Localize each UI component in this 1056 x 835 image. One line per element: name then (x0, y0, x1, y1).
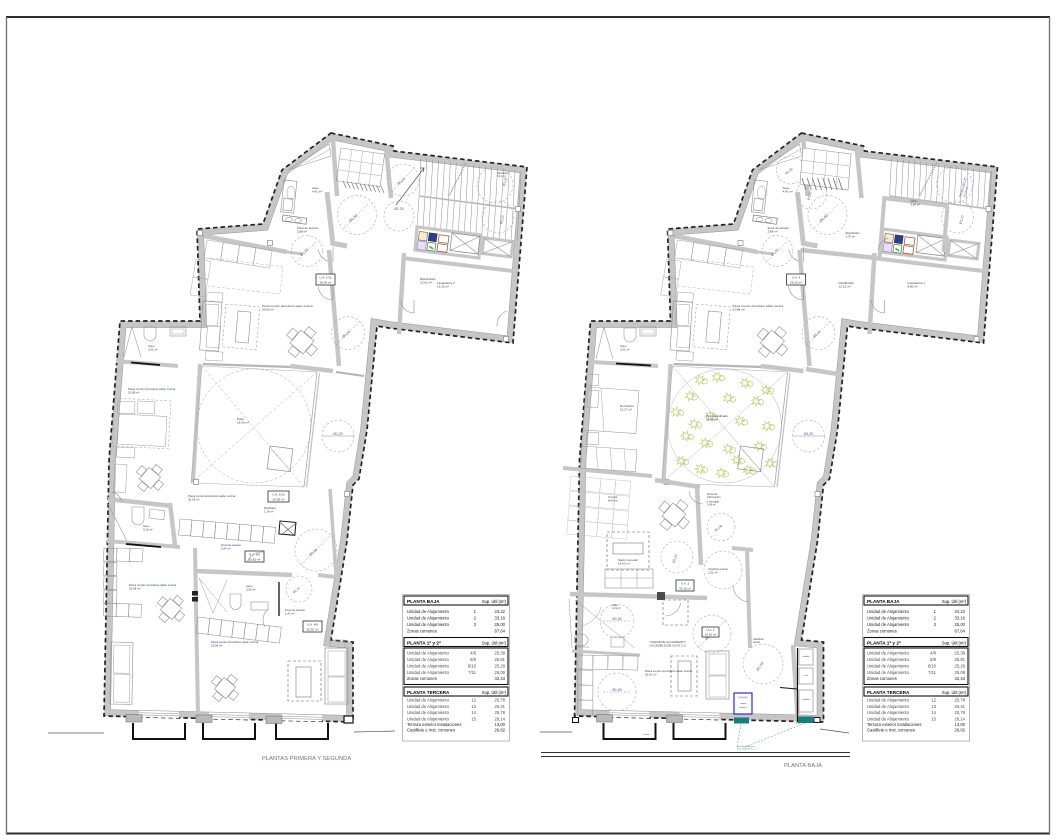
svg-text:PLANTAS PRIMERA Y SEGUNDA: PLANTAS PRIMERA Y SEGUNDA (262, 756, 351, 762)
svg-text:casillero: casillero (803, 655, 810, 658)
svg-text:Ø1,50: Ø1,50 (612, 617, 621, 621)
svg-text:Ø1,50: Ø1,50 (612, 688, 621, 692)
svg-text:calzada: calzada (644, 739, 652, 741)
svg-text:Unidad de Alojamiento: Unidad de Alojamiento (407, 704, 450, 709)
svg-text:PLANTA TERCERA: PLANTA TERCERA (407, 690, 450, 695)
svg-text:25,78: 25,78 (955, 710, 966, 715)
svg-text:7/11: 7/11 (928, 670, 937, 675)
svg-text:3,66 m²: 3,66 m² (911, 202, 921, 206)
svg-text:2,01 m²: 2,01 m² (708, 570, 718, 574)
svg-text:26,82: 26,82 (955, 728, 966, 733)
svg-text:26,32 m²: 26,32 m² (307, 628, 319, 632)
svg-text:Unidad de Alojamiento: Unidad de Alojamiento (867, 698, 910, 703)
svg-text:1,42 m²: 1,42 m² (285, 611, 295, 615)
svg-text:2,88 m²: 2,88 m² (768, 230, 778, 234)
svg-text:Sup. Útil (m²): Sup. Útil (m²) (482, 640, 507, 645)
svg-text:huella táctil (Ø no a...): huella táctil (Ø no a...) (737, 748, 757, 751)
svg-text:Ø1,20: Ø1,20 (804, 432, 813, 436)
svg-text:21,88 m²: 21,88 m² (733, 308, 745, 312)
svg-text:Unidad de Alojamiento: Unidad de Alojamiento (867, 657, 910, 662)
svg-text:3,61 m²: 3,61 m² (148, 347, 158, 351)
svg-text:Sup. Útil (m²): Sup. Útil (m²) (942, 640, 967, 645)
svg-text:Unidad de Alojamiento: Unidad de Alojamiento (407, 622, 450, 627)
svg-text:Unidad de Alojamiento: Unidad de Alojamiento (407, 716, 450, 721)
svg-text:33,16 m²: 33,16 m² (679, 587, 691, 591)
svg-text:Unidad de Alojamiento: Unidad de Alojamiento (407, 609, 450, 614)
svg-text:20,01 m²: 20,01 m² (645, 673, 656, 677)
svg-text:12: 12 (931, 698, 936, 703)
svg-text:26,38 m²: 26,38 m² (273, 498, 285, 502)
svg-text:Ø1,20: Ø1,20 (394, 207, 403, 211)
svg-text:25,00: 25,00 (495, 622, 506, 627)
svg-text:Unidad de Alojamiento: Unidad de Alojamiento (867, 651, 910, 656)
svg-text:15: 15 (931, 716, 936, 721)
svg-text:25,00: 25,00 (955, 622, 966, 627)
svg-text:26,09: 26,09 (955, 670, 966, 675)
svg-text:13: 13 (931, 704, 936, 709)
svg-text:26,04 m²: 26,04 m² (320, 281, 332, 285)
svg-text:20,06 m²: 20,06 m² (211, 644, 222, 648)
svg-text:33,16: 33,16 (495, 616, 506, 621)
svg-text:ACCESIBLE (DB SUA 9 1.2): ACCESIBLE (DB SUA 9 1.2) (650, 643, 686, 647)
svg-text:25,41: 25,41 (495, 704, 506, 709)
svg-text:4,21 m²: 4,21 m² (612, 606, 621, 610)
svg-text:18,00 m²: 18,00 m² (237, 421, 249, 425)
svg-text:13,00: 13,00 (955, 722, 966, 727)
svg-text:24,22 m²: 24,22 m² (705, 633, 717, 637)
svg-text:33,16: 33,16 (955, 616, 966, 621)
svg-text:4,41 m²: 4,41 m² (312, 190, 322, 194)
svg-text:24,22 m²: 24,22 m² (790, 281, 802, 285)
svg-text:Unidad de Alojamiento: Unidad de Alojamiento (867, 622, 910, 627)
svg-text:25,39: 25,39 (955, 651, 966, 656)
svg-text:Zonas comunes: Zonas comunes (867, 676, 897, 681)
svg-text:Sup. Útil (m²): Sup. Útil (m²) (942, 599, 967, 604)
svg-text:Zonas comunes: Zonas comunes (867, 629, 897, 634)
svg-text:14: 14 (931, 710, 936, 715)
svg-text:6/10: 6/10 (928, 664, 937, 669)
svg-text:U.A. 2: U.A. 2 (681, 582, 690, 586)
svg-text:(63x160): (63x160) (739, 697, 748, 699)
svg-text:67,64: 67,64 (955, 629, 966, 634)
svg-text:cuadro: cuadro (740, 703, 747, 705)
svg-text:13,26 m²: 13,26 m² (437, 285, 449, 289)
svg-text:26,14: 26,14 (955, 716, 966, 721)
svg-text:2,64 m²: 2,64 m² (221, 546, 231, 550)
svg-text:Unidad de Alojamiento: Unidad de Alojamiento (867, 664, 910, 669)
svg-text:3,75 m²: 3,75 m² (846, 234, 856, 238)
svg-text:Unidad de Alojamiento: Unidad de Alojamiento (407, 651, 450, 656)
svg-text:Unidad de Alojamiento: Unidad de Alojamiento (867, 716, 910, 721)
svg-text:Terraza exterior instalaciones: Terraza exterior instalaciones (867, 722, 921, 727)
svg-text:PLANTA BAJA: PLANTA BAJA (867, 599, 900, 604)
svg-text:25,39: 25,39 (495, 651, 506, 656)
svg-text:20,08 m²: 20,08 m² (129, 587, 140, 591)
svg-text:25,41: 25,41 (955, 704, 966, 709)
svg-text:PLANTA BAJA: PLANTA BAJA (407, 599, 440, 604)
svg-text:Unidad de Alojamiento: Unidad de Alojamiento (407, 670, 450, 675)
svg-text:Unidad de Alojamiento: Unidad de Alojamiento (407, 710, 450, 715)
svg-text:PLANTA 1ª y 2ª: PLANTA 1ª y 2ª (867, 640, 901, 645)
svg-text:Zonas comunes: Zonas comunes (407, 676, 437, 681)
svg-text:4/8: 4/8 (470, 651, 476, 656)
svg-text:Ø1,20: Ø1,20 (333, 432, 342, 436)
svg-text:12,12 m²: 12,12 m² (839, 285, 851, 289)
svg-text:eléctrico: eléctrico (739, 706, 747, 709)
svg-text:Unidad de Alojamiento: Unidad de Alojamiento (407, 664, 450, 669)
svg-text:26,09: 26,09 (495, 670, 506, 675)
svg-text:14: 14 (471, 710, 476, 715)
svg-text:8,00 m²: 8,00 m² (608, 499, 618, 503)
svg-text:6/10: 6/10 (468, 664, 477, 669)
svg-text:14,62 m²: 14,62 m² (618, 562, 630, 566)
svg-text:Unidad de Alojamiento: Unidad de Alojamiento (867, 670, 910, 675)
svg-text:U.A. 4: U.A. 4 (792, 276, 801, 280)
svg-text:castillete: castillete (802, 698, 809, 701)
svg-text:18,00 m²: 18,00 m² (706, 418, 718, 422)
svg-text:Unidad de Alojamiento: Unidad de Alojamiento (867, 704, 910, 709)
svg-text:3,05 m²: 3,05 m² (246, 587, 256, 591)
svg-text:acera: acera (644, 733, 650, 736)
svg-text:U.A. 4/8: U.A. 4/8 (307, 623, 318, 627)
svg-text:PLANTA TERCERA: PLANTA TERCERA (867, 690, 910, 695)
svg-text:Terraza exterior instalaciones: Terraza exterior instalaciones (407, 722, 461, 727)
svg-text:26,14: 26,14 (495, 716, 506, 721)
svg-text:24,22: 24,22 (955, 609, 966, 614)
svg-text:20,03 m²: 20,03 m² (188, 498, 199, 502)
svg-text:Unidad de Alojamiento: Unidad de Alojamiento (867, 609, 910, 614)
svg-text:8,80 m²: 8,80 m² (908, 285, 918, 289)
svg-text:25,29: 25,29 (955, 664, 966, 669)
svg-text:2,88 m²: 2,88 m² (297, 230, 307, 234)
svg-text:6,12 m²: 6,12 m² (497, 174, 506, 178)
svg-text:12,17 m²: 12,17 m² (620, 408, 632, 412)
svg-text:15: 15 (471, 716, 476, 721)
svg-text:42,43: 42,43 (955, 676, 966, 681)
svg-text:Sup. Útil (m²): Sup. Útil (m²) (482, 599, 507, 604)
svg-text:42,43: 42,43 (495, 676, 506, 681)
svg-text:25,81: 25,81 (955, 657, 966, 662)
svg-text:Zonas comunes: Zonas comunes (407, 629, 437, 634)
svg-text:26,82: 26,82 (495, 728, 506, 733)
svg-text:24,22: 24,22 (495, 609, 506, 614)
svg-text:7/11: 7/11 (468, 670, 477, 675)
svg-text:30,03 m²: 30,03 m² (262, 308, 274, 312)
svg-text:previo: previo (753, 640, 761, 644)
svg-text:25,81: 25,81 (495, 657, 506, 662)
svg-text:U.A. 5/9: U.A. 5/9 (249, 553, 260, 557)
svg-text:Unidad de Alojamiento: Unidad de Alojamiento (407, 657, 450, 662)
svg-text:1,76 m²: 1,76 m² (264, 509, 274, 513)
svg-text:22,62 m²: 22,62 m² (420, 281, 432, 285)
svg-text:Unidad de Alojamiento: Unidad de Alojamiento (867, 710, 910, 715)
svg-text:PLANTA 1ª y 2ª: PLANTA 1ª y 2ª (407, 640, 441, 645)
svg-text:3,16 m²: 3,16 m² (143, 527, 153, 531)
svg-text:5/9: 5/9 (930, 657, 936, 662)
svg-text:25,81 m²: 25,81 m² (249, 558, 261, 562)
svg-text:4,41 m²: 4,41 m² (783, 190, 793, 194)
svg-text:Sup. Útil (m²): Sup. Útil (m²) (942, 690, 967, 695)
svg-text:Unidad de Alojamiento: Unidad de Alojamiento (867, 616, 910, 621)
svg-text:Unidad de Alojamiento: Unidad de Alojamiento (407, 616, 450, 621)
svg-text:25,29: 25,29 (495, 664, 506, 669)
svg-text:Castillete e Inst. comunes: Castillete e Inst. comunes (867, 728, 915, 733)
svg-text:13,00: 13,00 (495, 722, 506, 727)
svg-text:3,61 m²: 3,61 m² (620, 347, 630, 351)
svg-text:25,78: 25,78 (495, 698, 506, 703)
svg-text:Sup. Útil (m²): Sup. Útil (m²) (482, 690, 507, 695)
svg-text:20,08 m²: 20,08 m² (128, 391, 139, 395)
svg-text:13: 13 (471, 704, 476, 709)
svg-text:25,78: 25,78 (495, 710, 506, 715)
svg-text:U.A. 1/11: U.A. 1/11 (319, 276, 332, 280)
svg-text:25,78: 25,78 (955, 698, 966, 703)
svg-text:67,64: 67,64 (495, 629, 506, 634)
svg-text:12: 12 (471, 698, 476, 703)
svg-text:información: información (707, 495, 721, 499)
svg-text:U.A. 6/10: U.A. 6/10 (272, 493, 285, 497)
svg-text:4/8: 4/8 (930, 651, 936, 656)
svg-text:3,43 m²: 3,43 m² (707, 503, 716, 507)
svg-text:5/9: 5/9 (470, 657, 476, 662)
svg-text:Unidad de Alojamiento: Unidad de Alojamiento (407, 698, 450, 703)
svg-text:PLANTA BAJA: PLANTA BAJA (784, 763, 822, 769)
svg-text:Castillete e Inst. comunes: Castillete e Inst. comunes (407, 728, 455, 733)
svg-text:e inst.: e inst. (803, 674, 809, 677)
